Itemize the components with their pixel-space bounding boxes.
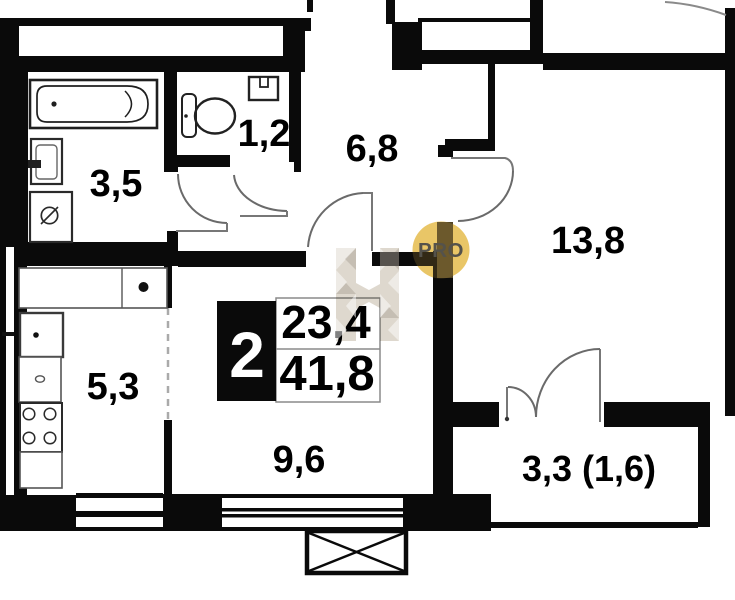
svg-text:PRO: PRO (418, 239, 464, 262)
svg-text:3,5: 3,5 (90, 163, 143, 205)
svg-text:41,8: 41,8 (279, 347, 374, 401)
svg-text:9,6: 9,6 (273, 439, 326, 481)
svg-text:3,3 (1,6): 3,3 (1,6) (522, 448, 656, 489)
svg-text:2: 2 (229, 319, 265, 391)
svg-text:13,8: 13,8 (551, 220, 625, 262)
svg-text:6,8: 6,8 (346, 128, 399, 170)
svg-text:5,3: 5,3 (87, 366, 140, 408)
svg-text:1,2: 1,2 (238, 113, 291, 155)
